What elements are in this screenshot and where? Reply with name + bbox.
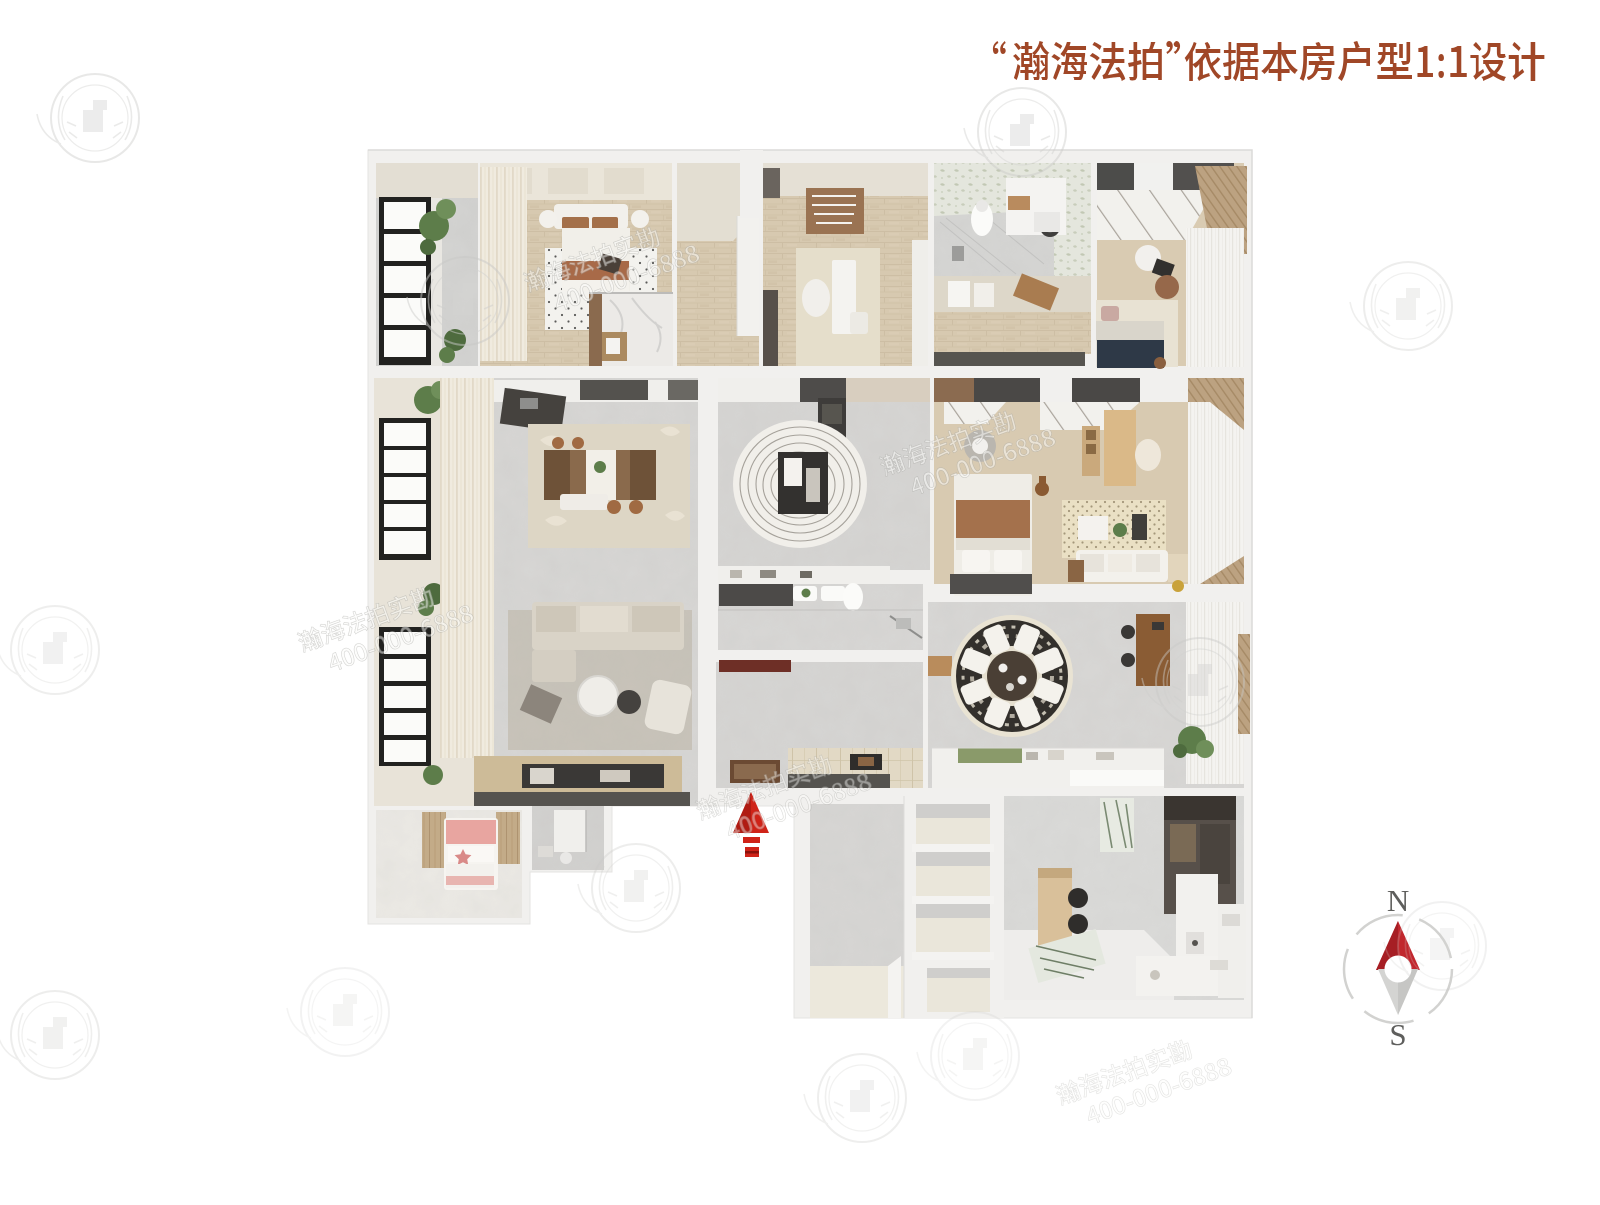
svg-text:N: N: [1387, 883, 1409, 918]
svg-text:S: S: [1389, 1017, 1406, 1052]
